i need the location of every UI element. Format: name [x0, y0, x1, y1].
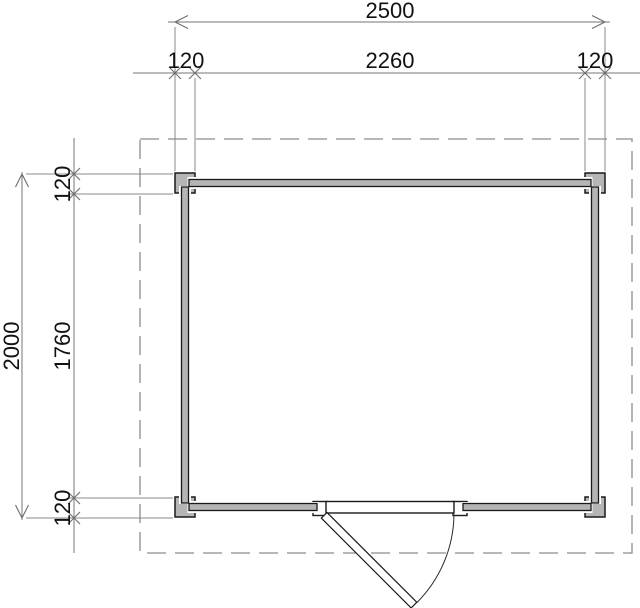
corner-posts: [175, 173, 605, 517]
wall-right: [592, 187, 599, 503]
dimension-left: 2000 120 1760 120: [0, 138, 173, 553]
roof-overhang-outline: [140, 139, 632, 553]
door-leaf-open: [321, 513, 416, 608]
dim-label-side-inner: 1760: [50, 322, 75, 371]
door-swing-arc: [417, 515, 454, 603]
floor-plan-canvas: 2500 120 2260 120 2000 120 1760 120: [0, 0, 640, 608]
wall-top: [189, 180, 591, 187]
dim-label-side-bottom: 120: [50, 490, 75, 527]
wall-bottom-left: [189, 504, 317, 511]
dim-label-top-inner: 2260: [366, 48, 415, 73]
dimension-top: 2500 120 2260 120: [133, 0, 640, 171]
dim-label-side-top: 120: [50, 166, 75, 203]
walls: [182, 180, 599, 511]
wall-left: [182, 187, 189, 503]
dim-label-top-left: 120: [168, 48, 205, 73]
door-panel-closed: [326, 502, 454, 514]
floor-plan-page: 2500 120 2260 120 2000 120 1760 120: [0, 0, 640, 608]
dim-label-top-right: 120: [577, 48, 614, 73]
post-notches: [179, 177, 601, 513]
wall-bottom-right: [463, 504, 591, 511]
door: [321, 502, 454, 608]
dim-label-top-overall: 2500: [366, 0, 415, 23]
dim-label-side-overall: 2000: [0, 322, 24, 371]
